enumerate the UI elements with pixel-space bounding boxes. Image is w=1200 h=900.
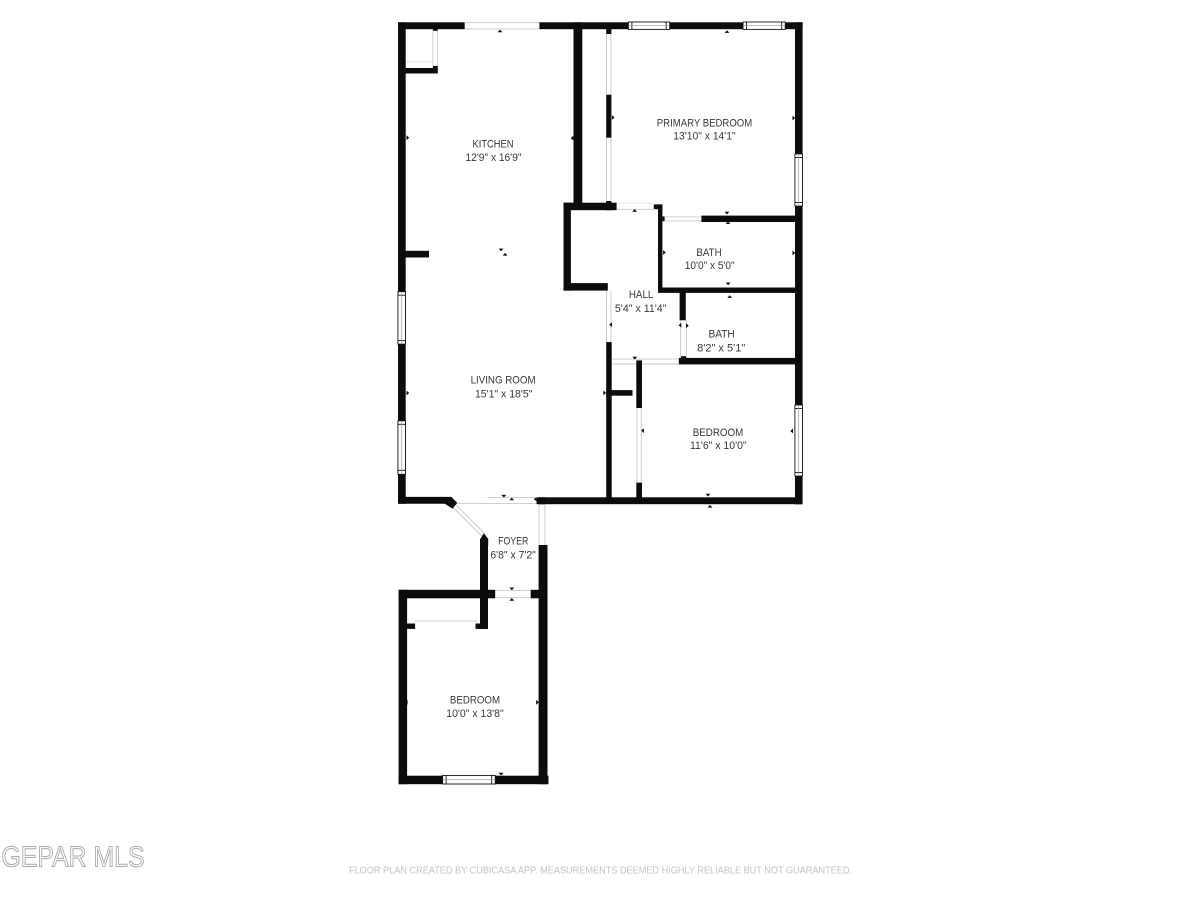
svg-text:BEDROOM: BEDROOM: [693, 427, 744, 439]
svg-text:BEDROOM: BEDROOM: [450, 694, 500, 706]
svg-text:FLOOR PLAN CREATED BY CUBICASA: FLOOR PLAN CREATED BY CUBICASA APP. MEAS…: [349, 865, 852, 876]
svg-text:13'10" x 14'1": 13'10" x 14'1": [673, 131, 736, 143]
svg-text:GEPAR MLS: GEPAR MLS: [2, 842, 145, 874]
svg-text:PRIMARY BEDROOM: PRIMARY BEDROOM: [657, 117, 752, 129]
svg-text:5'4" x 11'4": 5'4" x 11'4": [615, 303, 667, 315]
svg-text:FOYER: FOYER: [498, 535, 528, 547]
svg-text:12'9" x 16'9": 12'9" x 16'9": [466, 152, 522, 164]
svg-text:10'0" x 13'8": 10'0" x 13'8": [446, 708, 504, 720]
svg-text:BATH: BATH: [708, 329, 734, 341]
svg-text:8'2" x 5'1": 8'2" x 5'1": [697, 343, 745, 355]
svg-text:LIVING ROOM: LIVING ROOM: [471, 375, 536, 387]
svg-text:BATH: BATH: [696, 247, 721, 259]
svg-text:6'8" x 7'2": 6'8" x 7'2": [490, 550, 536, 562]
svg-text:11'6" x 10'0": 11'6" x 10'0": [690, 440, 747, 452]
svg-text:15'1" x 18'5": 15'1" x 18'5": [475, 388, 533, 400]
svg-text:HALL: HALL: [629, 289, 654, 301]
svg-text:KITCHEN: KITCHEN: [473, 138, 514, 150]
svg-text:10'0" x 5'0": 10'0" x 5'0": [685, 260, 735, 272]
